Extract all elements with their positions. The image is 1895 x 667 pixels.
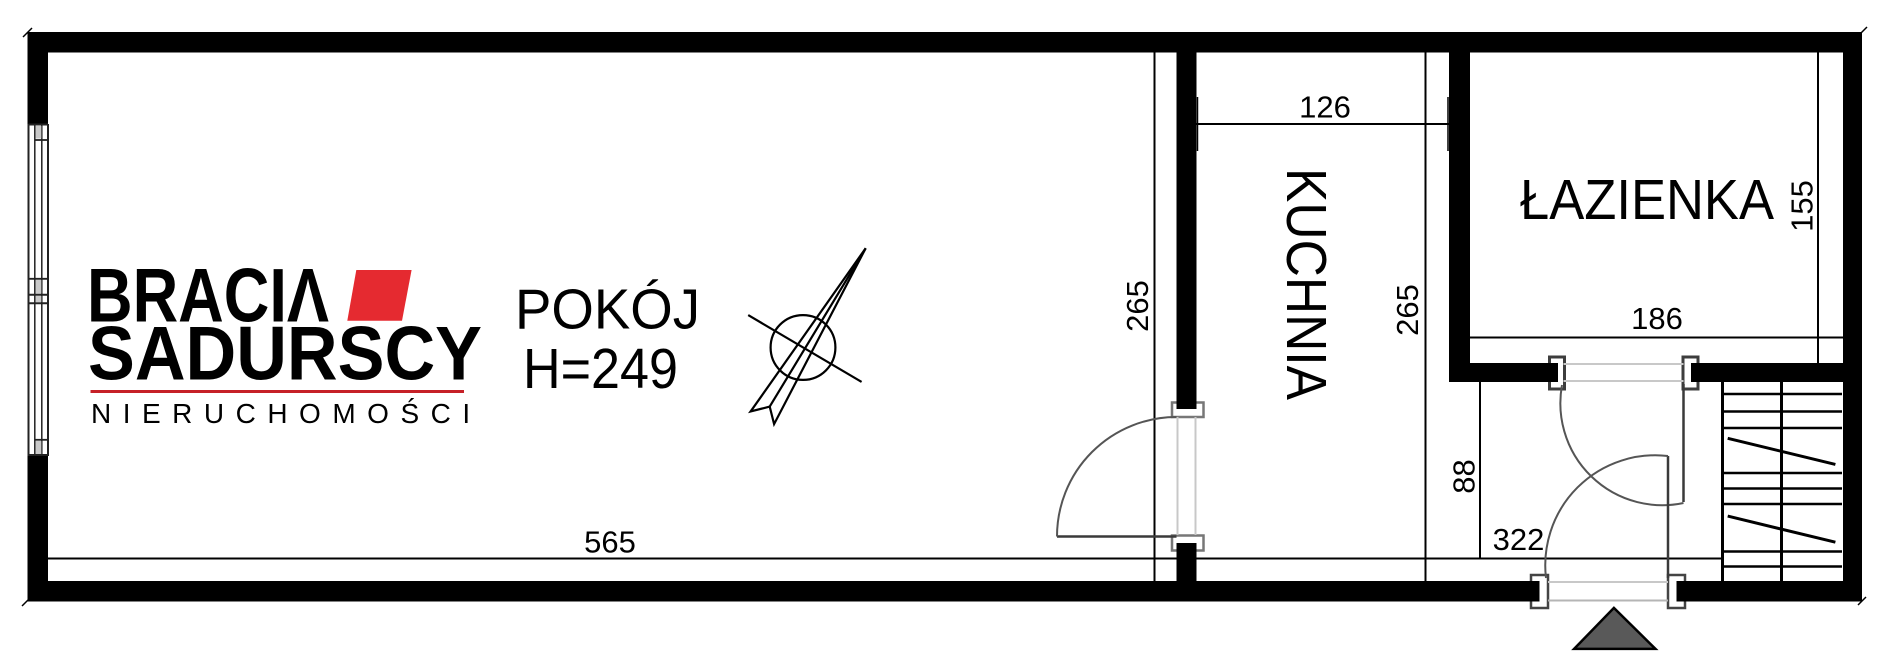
svg-text:NIERUCHOMOŚCI: NIERUCHOMOŚCI (91, 397, 482, 429)
svg-text:322: 322 (1493, 522, 1545, 557)
svg-text:KUCHNIA: KUCHNIA (1274, 168, 1338, 400)
svg-text:186: 186 (1631, 301, 1683, 336)
svg-text:126: 126 (1299, 90, 1351, 125)
svg-text:265: 265 (1390, 284, 1425, 336)
svg-text:155: 155 (1785, 180, 1820, 232)
svg-text:265: 265 (1120, 280, 1155, 332)
svg-text:SADURSCY: SADURSCY (88, 312, 482, 397)
svg-text:H=249: H=249 (523, 337, 678, 401)
svg-text:POKÓJ: POKÓJ (515, 278, 700, 342)
svg-text:ŁAZIENKA: ŁAZIENKA (1520, 168, 1774, 232)
svg-text:88: 88 (1447, 459, 1482, 493)
svg-text:565: 565 (584, 525, 636, 560)
